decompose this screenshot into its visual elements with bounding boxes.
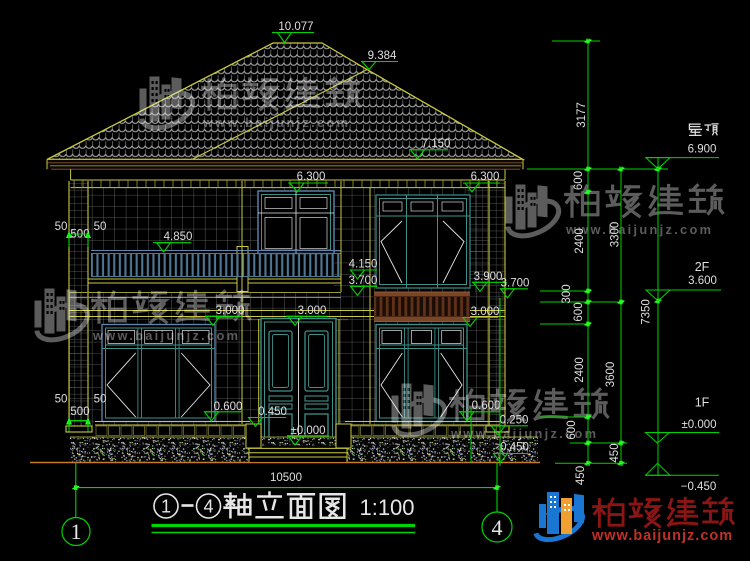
svg-text:9.384: 9.384 [368,50,397,62]
svg-text:3.000: 3.000 [298,305,327,317]
svg-text:2400: 2400 [574,357,586,383]
svg-text:0.450: 0.450 [500,442,529,454]
svg-text:0.450: 0.450 [258,406,287,418]
svg-text:7.150: 7.150 [422,138,451,150]
svg-text:1F: 1F [695,396,710,410]
svg-text:4.850: 4.850 [164,231,193,243]
svg-text:0.600: 0.600 [472,400,501,412]
svg-text:www.baijunjz.com: www.baijunjz.com [202,115,350,130]
svg-text:600: 600 [566,420,578,439]
svg-text:3300: 3300 [610,222,622,248]
svg-text:3.700: 3.700 [501,278,530,290]
svg-text:50: 50 [94,394,107,406]
svg-text:1:100: 1:100 [359,495,414,520]
svg-text:0.250: 0.250 [500,415,529,427]
svg-text:±0.000: ±0.000 [681,419,716,431]
svg-text:3.900: 3.900 [474,271,503,283]
svg-text:4: 4 [203,497,213,517]
svg-text:3.700: 3.700 [349,275,378,287]
svg-text:1: 1 [161,497,171,517]
svg-text:3.600: 3.600 [688,275,717,287]
svg-text:1: 1 [71,519,82,544]
svg-text:10.077: 10.077 [278,21,313,33]
svg-text:www.baijunjz.com: www.baijunjz.com [565,222,713,237]
svg-text:±0.000: ±0.000 [290,425,325,437]
svg-text:www.baijunjz.com: www.baijunjz.com [591,528,733,544]
svg-text:0.600: 0.600 [214,401,243,413]
svg-text:6.300: 6.300 [297,171,326,183]
svg-text:450: 450 [575,466,587,485]
svg-text:50: 50 [94,221,107,233]
svg-text:2F: 2F [695,260,710,274]
svg-text:50: 50 [55,394,68,406]
svg-text:3.000: 3.000 [216,305,245,317]
svg-text:500: 500 [70,406,89,418]
svg-text:50: 50 [55,221,68,233]
svg-text:3177: 3177 [576,102,588,128]
svg-text:10500: 10500 [270,472,302,484]
svg-text:www.baijunjz.com: www.baijunjz.com [92,328,240,343]
svg-text:3600: 3600 [605,362,617,388]
svg-text:7350: 7350 [641,299,653,325]
svg-text:600: 600 [573,171,585,190]
svg-text:4: 4 [492,515,503,540]
svg-text:3.000: 3.000 [471,306,500,318]
svg-text:2400: 2400 [574,228,586,254]
svg-text:300: 300 [561,284,573,303]
svg-text:6.300: 6.300 [471,171,500,183]
svg-text:−0.450: −0.450 [681,481,717,493]
svg-text:450: 450 [609,443,621,462]
svg-text:600: 600 [573,302,585,321]
svg-text:6.900: 6.900 [688,144,717,156]
svg-text:4.150: 4.150 [349,259,378,271]
